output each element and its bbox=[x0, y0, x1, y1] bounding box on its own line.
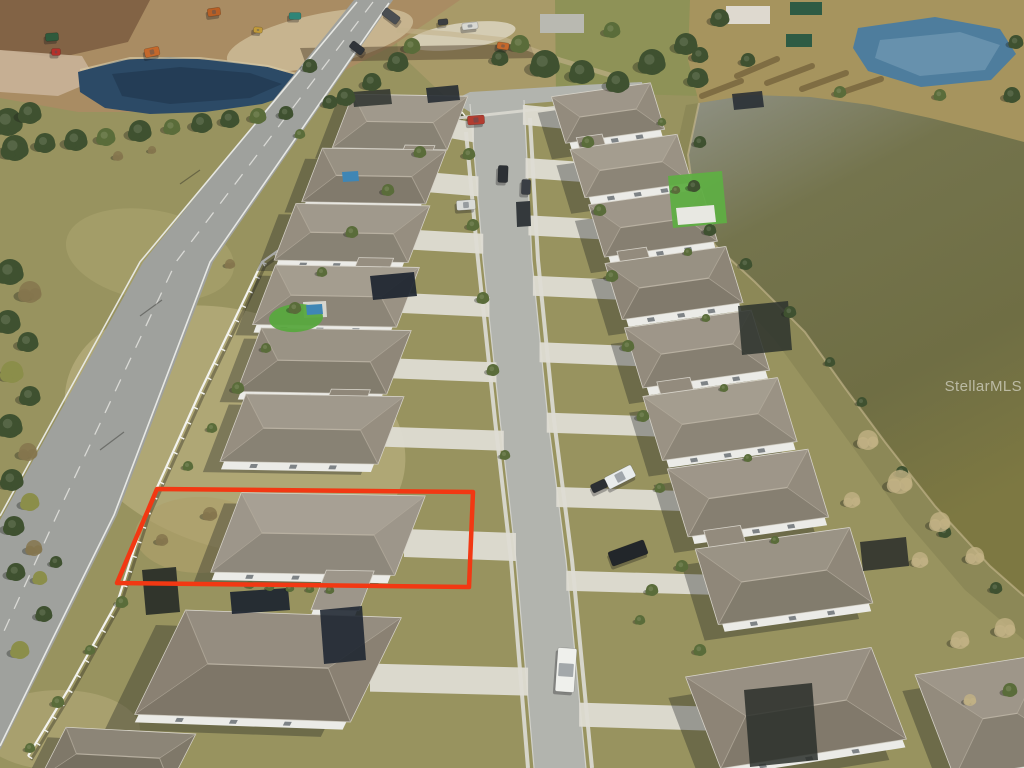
pool-cage-right-5 bbox=[738, 301, 792, 355]
solar-panels-left-8a bbox=[230, 588, 290, 614]
white-car-driving bbox=[553, 647, 577, 695]
stellarmls-watermark: StellarMLS bbox=[945, 378, 1022, 395]
gray-house-roof bbox=[540, 14, 584, 33]
aerial-photo-canvas: StellarMLS bbox=[0, 0, 1024, 768]
pool-cage-left-1 bbox=[352, 89, 392, 107]
house-left-6 bbox=[203, 393, 404, 475]
red-car-parked bbox=[465, 115, 485, 128]
mail-kiosk bbox=[516, 201, 531, 227]
teal-dumpster bbox=[287, 13, 301, 23]
driveway-subject-house bbox=[404, 529, 516, 561]
pool-left-2 bbox=[342, 171, 359, 182]
pool-cage-right-9 bbox=[744, 683, 818, 767]
farm-house-roof bbox=[726, 6, 770, 24]
pool-cage-left-8 bbox=[142, 567, 180, 615]
dark-roof-patch-right bbox=[732, 91, 764, 110]
pool-left-4 bbox=[306, 304, 323, 315]
scene-layers bbox=[0, 0, 1024, 768]
solar-panels-left-8b bbox=[320, 606, 366, 664]
pool-cage-right-8 bbox=[860, 537, 909, 571]
dark-roof-left-1 bbox=[426, 85, 460, 103]
white-van-parked bbox=[454, 199, 476, 213]
aerial-photo: StellarMLS bbox=[0, 0, 1024, 768]
green-shed-2 bbox=[786, 34, 812, 47]
lanai-right-3 bbox=[676, 205, 716, 225]
driveway-house-left-2 bbox=[430, 172, 478, 196]
driveway-house-left-8 bbox=[370, 664, 528, 696]
driveway-house-left-4 bbox=[402, 293, 489, 317]
green-shed-1 bbox=[790, 2, 822, 15]
driveway-house-left-5 bbox=[393, 358, 496, 382]
driveway-house-left-6 bbox=[385, 427, 504, 451]
solar-panels-left-4 bbox=[370, 272, 417, 300]
driveway-house-left-3 bbox=[413, 230, 483, 254]
